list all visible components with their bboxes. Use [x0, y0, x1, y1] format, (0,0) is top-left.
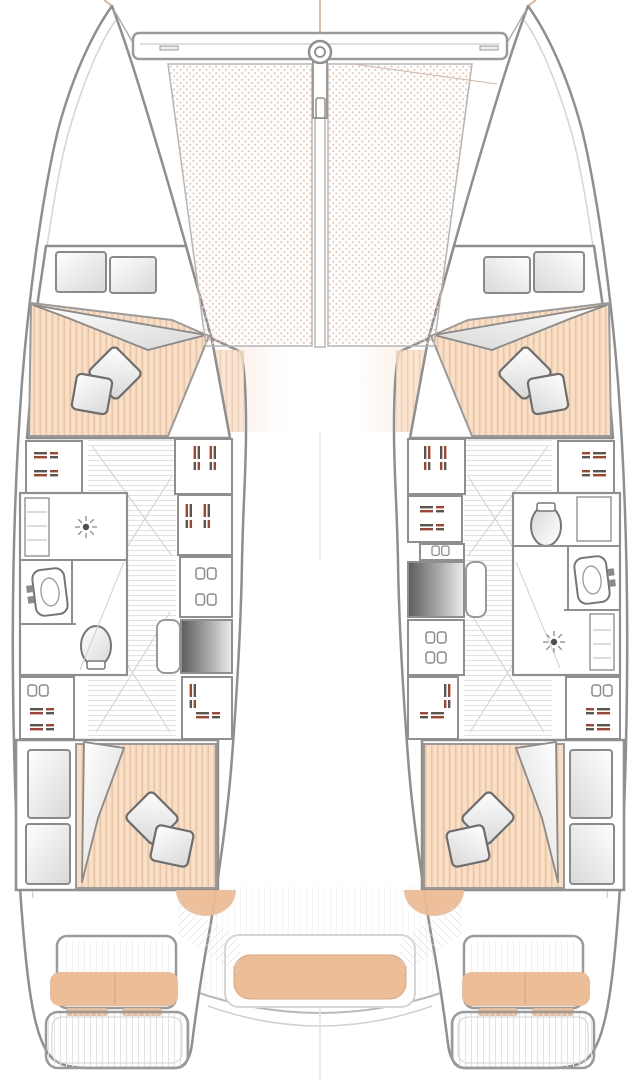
corner-shelf	[577, 497, 611, 541]
rigging-lines	[104, 0, 536, 34]
bowsprit-channel	[315, 115, 325, 347]
shower-shelf	[590, 614, 614, 670]
stair-landing	[466, 562, 486, 617]
floor-plan-drawing	[0, 0, 640, 1080]
companionway-stairs	[181, 620, 232, 673]
companionway-stairs	[408, 562, 464, 617]
zipper-pull	[316, 98, 325, 118]
beam-cleat	[160, 46, 178, 50]
catamaran-floor-plan	[0, 0, 640, 1080]
cockpit	[196, 886, 444, 1080]
shower-head-icon	[75, 516, 97, 538]
port-bathroom	[20, 493, 232, 675]
cabinet	[180, 557, 232, 617]
starboard-bathroom	[408, 493, 620, 675]
shower-shelf	[25, 498, 49, 556]
beam-fitting-icon	[309, 41, 331, 63]
stair-landing	[157, 620, 180, 673]
cabinet	[408, 620, 464, 675]
cabinet	[408, 496, 462, 542]
beam-cleat	[480, 46, 498, 50]
aft-bench-cushion	[234, 955, 406, 999]
